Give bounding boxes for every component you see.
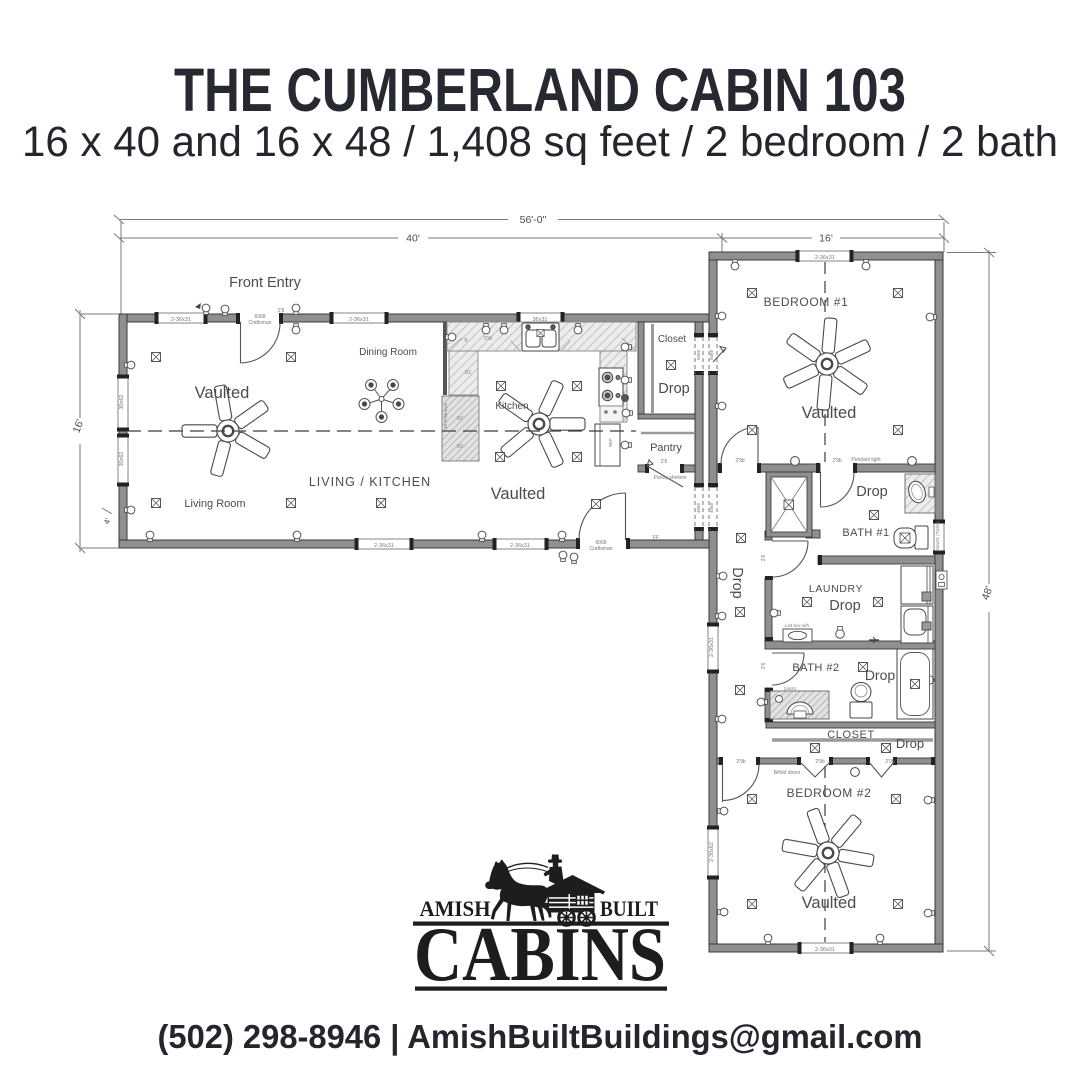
svg-text:2'9b: 2'9b xyxy=(815,759,825,765)
svg-text:30x62: 30x62 xyxy=(119,452,125,467)
svg-text:LAUNDRY: LAUNDRY xyxy=(809,583,863,595)
svg-text:16': 16' xyxy=(819,233,833,245)
svg-text:Lint box w/h: Lint box w/h xyxy=(785,623,810,628)
svg-text:2'9b: 2'9b xyxy=(736,759,746,765)
svg-text:Pendant light: Pendant light xyxy=(851,457,881,463)
svg-text:Bifold doors: Bifold doors xyxy=(774,770,801,776)
svg-text:5068: 5068 xyxy=(696,349,701,360)
svg-text:Closet: Closet xyxy=(658,334,687,345)
svg-text:40': 40' xyxy=(406,233,420,245)
svg-text:FF: FF xyxy=(653,535,659,541)
svg-text:2-36x31: 2-36x31 xyxy=(815,255,835,261)
svg-text:2-36x31: 2-36x31 xyxy=(374,543,394,549)
svg-text:4': 4' xyxy=(102,516,113,525)
svg-text:Drop: Drop xyxy=(829,598,860,614)
svg-text:2-36x31: 2-36x31 xyxy=(815,947,835,953)
svg-text:BEDROOM #2: BEDROOM #2 xyxy=(787,786,872,800)
svg-text:Living Room: Living Room xyxy=(184,498,245,510)
svg-text:2'8: 2'8 xyxy=(278,308,285,314)
svg-text:THE CUMBERLAND CABIN 103: THE CUMBERLAND CABIN 103 xyxy=(174,56,906,124)
svg-text:4068: 4068 xyxy=(696,502,701,513)
svg-text:BATH #1: BATH #1 xyxy=(842,527,889,539)
svg-text:CABINS: CABINS xyxy=(414,911,666,997)
svg-text:Drop: Drop xyxy=(658,381,689,397)
svg-text:Vaulted: Vaulted xyxy=(802,404,857,422)
svg-text:Pantry shelves: Pantry shelves xyxy=(654,475,687,481)
svg-text:CLOSET: CLOSET xyxy=(827,729,875,741)
svg-text:2x6x31 (T)obsc: 2x6x31 (T)obsc xyxy=(935,520,940,552)
svg-text:Dining Room: Dining Room xyxy=(359,347,417,358)
svg-text:56'-0": 56'-0" xyxy=(520,214,547,226)
svg-text:DW: DW xyxy=(484,336,493,342)
svg-text:2-36x31: 2-36x31 xyxy=(349,317,369,323)
svg-text:Drop: Drop xyxy=(729,567,745,598)
svg-text:30x62: 30x62 xyxy=(119,395,125,410)
svg-text:2-30x62: 2-30x62 xyxy=(709,842,715,862)
svg-text:36 Peninsula: 36 Peninsula xyxy=(443,402,448,429)
svg-text:BATH #2: BATH #2 xyxy=(792,662,839,674)
svg-text:5068: 5068 xyxy=(709,349,714,360)
svg-text:Pantry: Pantry xyxy=(650,442,682,454)
svg-text:2-36x31: 2-36x31 xyxy=(709,637,715,657)
svg-text:2'9b: 2'9b xyxy=(735,458,745,464)
svg-text:2'6: 2'6 xyxy=(661,459,668,465)
svg-text:Craftsman: Craftsman xyxy=(248,320,271,326)
svg-text:Kitchen: Kitchen xyxy=(495,401,528,412)
svg-text:LIVING / KITCHEN: LIVING / KITCHEN xyxy=(309,475,431,489)
svg-text:(502) 298-8946 | AmishBuiltBui: (502) 298-8946 | AmishBuiltBuildings@gma… xyxy=(158,1019,923,1056)
svg-text:Vaulted: Vaulted xyxy=(802,894,857,912)
svg-text:Front Entry: Front Entry xyxy=(229,275,301,291)
svg-text:B2: B2 xyxy=(457,444,463,450)
svg-text:Craftsman: Craftsman xyxy=(589,546,612,552)
svg-text:B2: B2 xyxy=(465,370,471,376)
svg-text:REF: REF xyxy=(608,438,613,447)
svg-text:Drop: Drop xyxy=(856,484,887,500)
svg-text:BEDROOM #1: BEDROOM #1 xyxy=(764,295,849,309)
svg-text:4068: 4068 xyxy=(709,502,714,513)
svg-text:2'6: 2'6 xyxy=(761,555,767,562)
svg-text:Vaulted: Vaulted xyxy=(195,384,250,402)
svg-text:Drop: Drop xyxy=(865,667,896,683)
svg-text:2'9b: 2'9b xyxy=(885,759,895,765)
svg-text:24x21: 24x21 xyxy=(784,686,797,691)
svg-text:2-36x31: 2-36x31 xyxy=(510,543,530,549)
svg-text:Vaulted: Vaulted xyxy=(491,485,546,503)
svg-text:16 x 40 and 16 x 48 / 1,408 sq: 16 x 40 and 16 x 48 / 1,408 sq feet / 2 … xyxy=(22,118,1058,166)
svg-text:2'9b: 2'9b xyxy=(832,458,842,464)
svg-text:2-36x31: 2-36x31 xyxy=(171,317,191,323)
svg-text:Drop: Drop xyxy=(896,736,924,751)
svg-text:B2: B2 xyxy=(457,416,463,422)
svg-text:2'6: 2'6 xyxy=(761,663,767,670)
